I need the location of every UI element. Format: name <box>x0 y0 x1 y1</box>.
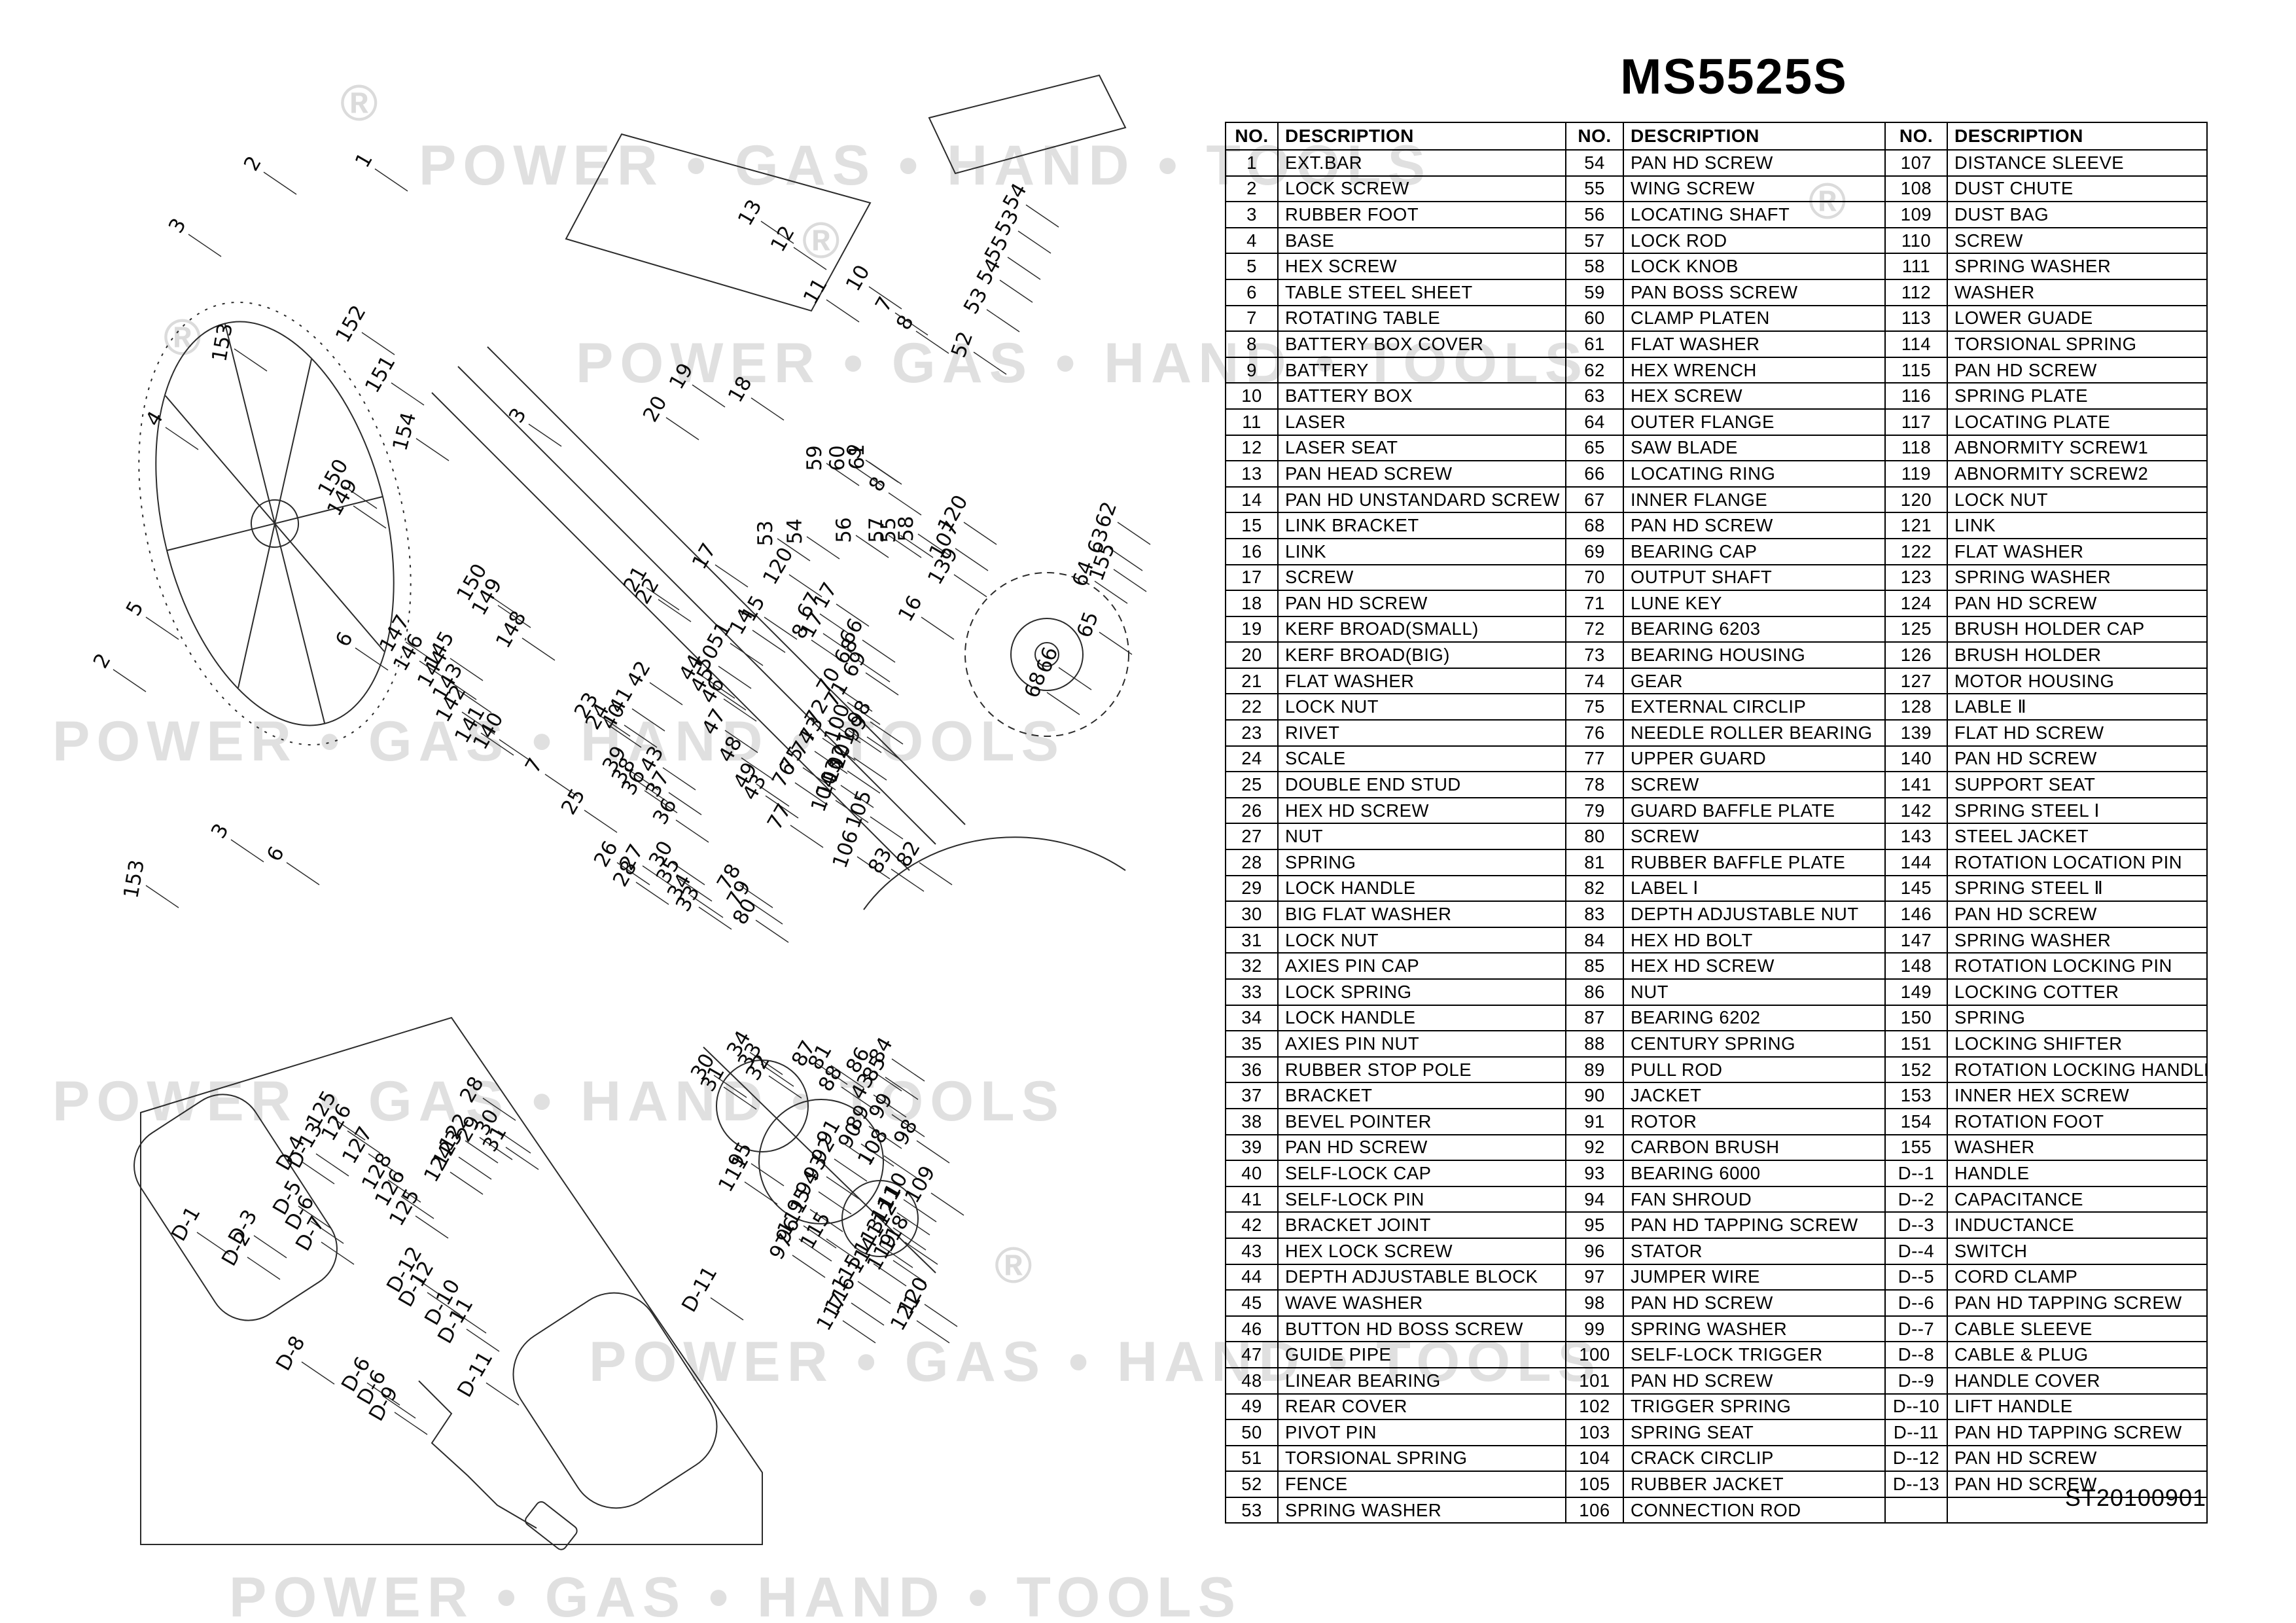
part-desc-cell: SCREW <box>1947 228 2207 254</box>
part-no-cell: 82 <box>1566 876 1623 902</box>
part-desc-cell: SELF-LOCK TRIGGER <box>1623 1342 1885 1368</box>
callout-leader-line <box>650 683 682 705</box>
part-desc-cell: LOCK HANDLE <box>1278 876 1566 902</box>
part-no-cell: 16 <box>1226 539 1278 565</box>
table-row: 14PAN HD UNSTANDARD SCREW67INNER FLANGE1… <box>1226 487 2207 513</box>
callout-label: 2 <box>239 152 266 175</box>
part-no-cell: 99 <box>1566 1316 1623 1342</box>
table-row: 16LINK69BEARING CAP122FLAT WASHER <box>1226 539 2207 565</box>
callout-label: D-8 <box>272 1332 310 1374</box>
part-desc-cell: SPRING WASHER <box>1278 1497 1566 1524</box>
callout-leader-line <box>1008 257 1040 279</box>
table-row: 5HEX SCREW58LOCK KNOB111SPRING WASHER <box>1226 253 2207 279</box>
part-no-cell: 11 <box>1226 409 1278 435</box>
callout-label: 54 <box>783 518 807 544</box>
part-desc-cell: INDUCTANCE <box>1947 1212 2207 1238</box>
callout-label: 120 <box>758 543 798 588</box>
part-no-cell: 50 <box>1226 1419 1278 1446</box>
part-no-cell: D--11 <box>1885 1419 1947 1446</box>
part-no-cell: 33 <box>1226 979 1278 1005</box>
callout-leader-line <box>964 522 997 544</box>
table-row: 18PAN HD SCREW71LUNE KEY124PAN HD SCREW <box>1226 590 2207 616</box>
part-desc-cell: LOCATING SHAFT <box>1623 202 1885 228</box>
table-row: 7ROTATING TABLE60CLAMP PLATEN113LOWER GU… <box>1226 306 2207 332</box>
callout-leader-line <box>790 825 823 847</box>
part-no-cell: 42 <box>1226 1212 1278 1238</box>
part-no-cell: 55 <box>1566 176 1623 202</box>
callout-leader-line <box>353 506 386 528</box>
part-desc-cell: LABEL Ⅰ <box>1623 876 1885 902</box>
callout-leader-line <box>919 863 952 885</box>
part-no-cell: 77 <box>1566 746 1623 772</box>
part-no-cell: 96 <box>1566 1238 1623 1264</box>
part-desc-cell: ROTOR <box>1623 1109 1885 1135</box>
callout-leader-line <box>847 771 880 793</box>
part-no-cell: 111 <box>1885 253 1947 279</box>
part-no-cell: 5 <box>1226 253 1278 279</box>
part-desc-cell: SELF-LOCK CAP <box>1278 1160 1566 1186</box>
table-row: 28SPRING81RUBBER BAFFLE PLATE144ROTATION… <box>1226 849 2207 876</box>
part-no-cell: 128 <box>1885 694 1947 720</box>
part-no-cell: 58 <box>1566 253 1623 279</box>
part-no-cell: 88 <box>1566 1031 1623 1057</box>
callout-leader-line <box>870 722 903 744</box>
part-no-cell: 85 <box>1566 953 1623 979</box>
part-desc-cell: LASER SEAT <box>1278 435 1566 461</box>
callout-label: 12 <box>766 222 800 256</box>
part-desc-cell: LOCK SCREW <box>1278 176 1566 202</box>
part-desc-cell: BUTTON HD BOSS SCREW <box>1278 1316 1566 1342</box>
part-no-cell: D--8 <box>1885 1342 1947 1368</box>
part-desc-cell: MOTOR HOUSING <box>1947 668 2207 694</box>
part-desc-cell: SPRING <box>1278 849 1566 876</box>
part-no-cell: 122 <box>1885 539 1947 565</box>
callout-leader-line <box>931 1193 964 1215</box>
part-no-cell: 97 <box>1566 1264 1623 1291</box>
callout-leader-line <box>917 1141 949 1163</box>
part-no-cell: 109 <box>1885 202 1947 228</box>
part-desc-cell: UPPER GUARD <box>1623 746 1885 772</box>
part-desc-cell: CLAMP PLATEN <box>1623 306 1885 332</box>
callout-leader-line <box>1047 692 1080 715</box>
callout-leader-line <box>264 172 296 194</box>
part-no-cell: 93 <box>1566 1160 1623 1186</box>
part-desc-cell: KERF BROAD(SMALL) <box>1278 616 1566 643</box>
part-no-cell: 20 <box>1226 642 1278 668</box>
callout-leader-line <box>302 1162 334 1184</box>
part-no-cell: 47 <box>1226 1342 1278 1368</box>
callout-leader-line <box>885 1077 918 1099</box>
part-no-cell: 120 <box>1885 487 1947 513</box>
part-desc-cell: FLAT HD SCREW <box>1947 720 2207 746</box>
part-no-cell: 153 <box>1885 1082 1947 1109</box>
part-no-cell: 155 <box>1885 1135 1947 1161</box>
part-desc-cell: HEX HD SCREW <box>1278 798 1566 824</box>
callout-leader-line <box>234 349 267 371</box>
callout-label: 59 <box>803 445 826 471</box>
part-desc-cell: LOCK NUT <box>1947 487 2207 513</box>
part-desc-cell: SPRING WASHER <box>1947 253 2207 279</box>
callout-leader-line <box>715 565 748 587</box>
callout-leader-line <box>362 332 395 355</box>
callout-leader-line <box>1118 522 1150 544</box>
part-desc-cell: HEX HD BOLT <box>1623 927 1885 954</box>
table-row: 37BRACKET90JACKET153INNER HEX SCREW <box>1226 1082 2207 1109</box>
part-no-cell: 94 <box>1566 1186 1623 1213</box>
callout-leader-line <box>1026 205 1059 227</box>
part-no-cell: 84 <box>1566 927 1623 954</box>
part-desc-cell: BIG FLAT WASHER <box>1278 901 1566 927</box>
part-no-cell: 48 <box>1226 1368 1278 1394</box>
callout-leader-line <box>522 638 555 660</box>
callout-leader-line <box>113 669 146 692</box>
part-desc-cell: GUIDE PIPE <box>1278 1342 1566 1368</box>
part-desc-cell: PAN HD SCREW <box>1278 590 1566 616</box>
part-desc-cell: DEPTH ADJUSTABLE NUT <box>1623 901 1885 927</box>
part-desc-cell: BEVEL POINTER <box>1278 1109 1566 1135</box>
callout-leader-line <box>851 1303 884 1325</box>
callout-leader-line <box>921 617 954 639</box>
callout-leader-line <box>188 234 221 257</box>
table-row: 26HEX HD SCREW79GUARD BAFFLE PLATE142SPR… <box>1226 798 2207 824</box>
callout-leader-line <box>1018 231 1051 253</box>
part-desc-cell: STATOR <box>1623 1238 1885 1264</box>
part-no-cell: 141 <box>1885 772 1947 798</box>
part-no-cell: 45 <box>1226 1290 1278 1316</box>
part-no-cell: 35 <box>1226 1031 1278 1057</box>
part-desc-cell: DUST CHUTE <box>1947 176 2207 202</box>
callout-label: 62 <box>1091 499 1122 531</box>
table-row: 41SELF-LOCK PIN94FAN SHROUDD--2CAPACITAN… <box>1226 1186 2207 1213</box>
part-desc-cell: FLAT WASHER <box>1623 331 1885 357</box>
part-desc-cell: TRIGGER SPRING <box>1623 1394 1885 1420</box>
callout-leader-line <box>416 438 449 461</box>
part-no-cell: 81 <box>1566 849 1623 876</box>
part-desc-cell: OUTPUT SHAFT <box>1623 565 1885 591</box>
footer-code: ST20100901 <box>1963 1484 2206 1512</box>
part-no-cell: 149 <box>1885 979 1947 1005</box>
part-desc-cell: EXT.BAR <box>1278 150 1566 176</box>
callout-leader-line <box>889 493 921 515</box>
part-no-cell: 54 <box>1566 150 1623 176</box>
part-desc-cell: NEEDLE ROLLER BEARING <box>1623 720 1885 746</box>
part-no-cell: 73 <box>1566 642 1623 668</box>
part-no-cell: 106 <box>1566 1497 1623 1524</box>
part-desc-cell: ABNORMITY SCREW1 <box>1947 435 2207 461</box>
part-desc-cell: SCREW <box>1623 772 1885 798</box>
part-desc-cell: PAN HD TAPPING SCREW <box>1947 1290 2207 1316</box>
part-no-cell: 145 <box>1885 876 1947 902</box>
part-desc-cell: CARBON BRUSH <box>1623 1135 1885 1161</box>
part-desc-cell: HANDLE COVER <box>1947 1368 2207 1394</box>
part-no-cell: 125 <box>1885 616 1947 643</box>
part-no-cell: 31 <box>1226 927 1278 954</box>
part-no-cell: 104 <box>1566 1446 1623 1472</box>
table-row: 42BRACKET JOINT95PAN HD TAPPING SCREWD--… <box>1226 1212 2207 1238</box>
part-no-cell: D--9 <box>1885 1368 1947 1394</box>
part-desc-cell: PAN HD UNSTANDARD SCREW <box>1278 487 1566 513</box>
part-desc-cell: AXIES PIN NUT <box>1278 1031 1566 1057</box>
part-no-cell: 105 <box>1566 1471 1623 1497</box>
part-desc-cell: PIVOT PIN <box>1278 1419 1566 1446</box>
part-desc-cell: LOWER GUADE <box>1947 306 2207 332</box>
part-desc-cell: PAN BOSS SCREW <box>1623 279 1885 306</box>
part-no-cell: 9 <box>1226 357 1278 383</box>
part-desc-cell: BEARING 6203 <box>1623 616 1885 643</box>
part-desc-cell: HEX HD SCREW <box>1623 953 1885 979</box>
part-no-cell: D--10 <box>1885 1394 1947 1420</box>
table-row: 9BATTERY62HEX WRENCH115PAN HD SCREW <box>1226 357 2207 383</box>
part-desc-cell: PAN HD SCREW <box>1947 746 2207 772</box>
part-no-cell: 143 <box>1885 823 1947 849</box>
part-no-cell: 26 <box>1226 798 1278 824</box>
callout-label: 7 <box>521 754 548 777</box>
part-desc-cell: RIVET <box>1278 720 1566 746</box>
header-description: DESCRIPTION <box>1947 122 2207 150</box>
callout-label: 17 <box>688 539 721 573</box>
part-desc-cell: SPRING WASHER <box>1947 927 2207 954</box>
part-desc-cell: LOCKING COTTER <box>1947 979 2207 1005</box>
callout-label: 53 <box>959 284 993 318</box>
part-desc-cell: SPRING PLATE <box>1947 383 2207 409</box>
callout-label: 105 <box>841 787 877 832</box>
part-no-cell: D--2 <box>1885 1186 1947 1213</box>
callout-leader-line <box>751 1164 784 1186</box>
part-no-cell: D--4 <box>1885 1238 1947 1264</box>
callout-leader-line <box>467 1329 499 1351</box>
part-desc-cell: RUBBER JACKET <box>1623 1471 1885 1497</box>
part-no-cell: 14 <box>1226 487 1278 513</box>
part-no-cell: 140 <box>1885 746 1947 772</box>
part-no-cell: 38 <box>1226 1109 1278 1135</box>
part-no-cell: 101 <box>1566 1368 1623 1394</box>
part-no-cell: 13 <box>1226 461 1278 487</box>
callout-label: 6 <box>331 628 358 651</box>
table-row: 19KERF BROAD(SMALL)72BEARING 6203125BRUS… <box>1226 616 2207 643</box>
part-no-cell: D--3 <box>1885 1212 1947 1238</box>
part-desc-cell: SPRING STEEL Ⅰ <box>1947 798 2207 824</box>
table-row: 32AXIES PIN CAP85HEX HD SCREW148ROTATION… <box>1226 953 2207 979</box>
part-no-cell: 100 <box>1566 1342 1623 1368</box>
callout-label: 153 <box>119 858 149 901</box>
part-desc-cell: CRACK CIRCLIP <box>1623 1446 1885 1472</box>
callout-label: 18 <box>724 372 757 406</box>
table-row: 39PAN HD SCREW92CARBON BRUSH155WASHER <box>1226 1135 2207 1161</box>
part-desc-cell: DOUBLE END STUD <box>1278 772 1566 798</box>
part-no-cell: D--1 <box>1885 1160 1947 1186</box>
part-desc-cell: LOCK KNOB <box>1623 253 1885 279</box>
table-row: 47GUIDE PIPE100SELF-LOCK TRIGGERD--8CABL… <box>1226 1342 2207 1368</box>
part-desc-cell: ROTATING TABLE <box>1278 306 1566 332</box>
page-title: MS5525S <box>1570 48 1898 105</box>
part-desc-cell: SELF-LOCK PIN <box>1278 1186 1566 1213</box>
callout-leader-line <box>146 885 179 908</box>
part-desc-cell: FAN SHROUD <box>1623 1186 1885 1213</box>
table-row: 43HEX LOCK SCREW96STATORD--4SWITCH <box>1226 1238 2207 1264</box>
part-no-cell: 24 <box>1226 746 1278 772</box>
callout-leader-line <box>752 630 785 652</box>
part-no-cell: 36 <box>1226 1057 1278 1083</box>
part-desc-cell: DEPTH ADJUSTABLE BLOCK <box>1278 1264 1566 1291</box>
table-row: 29LOCK HANDLE82LABEL Ⅰ145SPRING STEEL Ⅱ <box>1226 876 2207 902</box>
part-no-cell: 1 <box>1226 150 1278 176</box>
part-desc-cell: NUT <box>1278 823 1566 849</box>
part-desc-cell: PAN HD SCREW <box>1623 1290 1885 1316</box>
part-desc-cell: RUBBER BAFFLE PLATE <box>1623 849 1885 876</box>
parts-table: NO.DESCRIPTIONNO.DESCRIPTIONNO.DESCRIPTI… <box>1225 122 2208 1524</box>
callout-label: 56 <box>832 517 856 543</box>
part-no-cell: 30 <box>1226 901 1278 927</box>
part-no-cell: 32 <box>1226 953 1278 979</box>
part-no-cell: 150 <box>1885 1005 1947 1031</box>
part-desc-cell: LOCK ROD <box>1623 228 1885 254</box>
callout-leader-line <box>745 1182 777 1204</box>
callout-leader-line <box>632 709 665 731</box>
part-desc-cell: ABNORMITY SCREW2 <box>1947 461 2207 487</box>
callout-label: 7 <box>871 293 898 315</box>
part-no-cell: 69 <box>1566 539 1623 565</box>
table-row: 4BASE57LOCK ROD110 SCREW <box>1226 228 2207 254</box>
table-row: 11LASER64OUTER FLANGE117LOCATING PLATE <box>1226 409 2207 435</box>
callout-leader-line <box>751 398 784 420</box>
part-no-cell: 52 <box>1226 1471 1278 1497</box>
part-no-cell: 154 <box>1885 1109 1947 1135</box>
part-no-cell: 10 <box>1226 383 1278 409</box>
part-no-cell: 123 <box>1885 565 1947 591</box>
part-no-cell: 142 <box>1885 798 1947 824</box>
part-no-cell: 15 <box>1226 512 1278 539</box>
part-desc-cell: DUST BAG <box>1947 202 2207 228</box>
part-no-cell: 152 <box>1885 1057 1947 1083</box>
part-desc-cell: BEARING 6000 <box>1623 1160 1885 1186</box>
callout-leader-line <box>321 1242 354 1264</box>
callout-leader-line <box>794 247 826 270</box>
callout-label: 10 <box>841 261 875 295</box>
part-desc-cell: LOCK NUT <box>1278 927 1566 954</box>
part-no-cell: 65 <box>1566 435 1623 461</box>
part-desc-cell: PAN HD SCREW <box>1947 1446 2207 1472</box>
part-no-cell: 12 <box>1226 435 1278 461</box>
part-desc-cell: LOCKING SHIFTER <box>1947 1031 2207 1057</box>
part-no-cell: 25 <box>1226 772 1278 798</box>
table-row: 46BUTTON HD BOSS SCREW99SPRING WASHERD--… <box>1226 1316 2207 1342</box>
part-no-cell: 41 <box>1226 1186 1278 1213</box>
callout-leader-line <box>395 1412 427 1435</box>
part-no-cell: 95 <box>1566 1212 1623 1238</box>
part-no-cell: 124 <box>1885 590 1947 616</box>
part-no-cell: 74 <box>1566 668 1623 694</box>
table-row: 8BATTERY BOX COVER61FLAT WASHER114TORSIO… <box>1226 331 2207 357</box>
table-row: 44DEPTH ADJUSTABLE BLOCK97JUMPER WIRED--… <box>1226 1264 2207 1291</box>
part-desc-cell: WING SCREW <box>1623 176 1885 202</box>
part-desc-cell: BEARING 6202 <box>1623 1005 1885 1031</box>
part-desc-cell: LINK BRACKET <box>1278 512 1566 539</box>
part-no-cell: 29 <box>1226 876 1278 902</box>
table-row: 12LASER SEAT65SAW BLADE118ABNORMITY SCRE… <box>1226 435 2207 461</box>
callout-leader-line <box>287 863 319 885</box>
part-desc-cell: SUPPORT SEAT <box>1947 772 2207 798</box>
part-desc-cell: LIFT HANDLE <box>1947 1394 2207 1420</box>
part-desc-cell: FENCE <box>1278 1471 1566 1497</box>
part-desc-cell: ROTATION LOCKING HANDLE <box>1947 1057 2207 1083</box>
part-no-cell: D--12 <box>1885 1446 1947 1472</box>
part-no-cell: 46 <box>1226 1316 1278 1342</box>
table-row: 10BATTERY BOX63HEX SCREW116SPRING PLATE <box>1226 383 2207 409</box>
part-no-cell: 76 <box>1566 720 1623 746</box>
part-desc-cell: BRUSH HOLDER CAP <box>1947 616 2207 643</box>
part-desc-cell: SCALE <box>1278 746 1566 772</box>
callout-leader-line <box>792 1255 825 1277</box>
callout-label: 2 <box>89 649 116 672</box>
part-no-cell: 49 <box>1226 1394 1278 1420</box>
part-desc-cell: RUBBER STOP POLE <box>1278 1057 1566 1083</box>
table-row: 17SCREW70OUTPUT SHAFT123SPRING WASHER <box>1226 565 2207 591</box>
part-no-cell: 19 <box>1226 616 1278 643</box>
part-no-cell: 126 <box>1885 642 1947 668</box>
callout-label: 151 <box>361 351 400 397</box>
callout-leader-line <box>974 352 1006 374</box>
part-desc-cell: BATTERY <box>1278 357 1566 383</box>
part-no-cell: 86 <box>1566 979 1623 1005</box>
part-desc-cell: FLAT WASHER <box>1947 539 2207 565</box>
part-desc-cell: TABLE STEEL SHEET <box>1278 279 1566 306</box>
callout-leader-line <box>1114 569 1146 592</box>
part-desc-cell: HEX SCREW <box>1623 383 1885 409</box>
part-desc-cell: PAN HD SCREW <box>1278 1135 1566 1161</box>
callout-label: 82 <box>892 837 925 871</box>
part-no-cell: 3 <box>1226 202 1278 228</box>
part-desc-cell: RUBBER FOOT <box>1278 202 1566 228</box>
part-no-cell: 67 <box>1566 487 1623 513</box>
callout-label: 25 <box>557 785 590 819</box>
callout-label: 52 <box>947 329 978 361</box>
table-row: 25DOUBLE END STUD78 SCREW141SUPPORT SEAT <box>1226 772 2207 798</box>
part-no-cell <box>1885 1497 1947 1524</box>
table-row: 34LOCK HANDLE87BEARING 6202150SPRING <box>1226 1005 2207 1031</box>
callout-leader-line <box>867 737 900 759</box>
callout-label: 13 <box>733 196 767 230</box>
callout-label: 148 <box>491 607 531 652</box>
part-no-cell: 148 <box>1885 953 1947 979</box>
callout-label: 154 <box>388 410 421 453</box>
callout-leader-line <box>391 383 424 405</box>
part-desc-cell: LOCATING PLATE <box>1947 409 2207 435</box>
part-desc-cell: BEARING CAP <box>1623 539 1885 565</box>
callout-leader-line <box>450 1172 483 1194</box>
part-no-cell: 119 <box>1885 461 1947 487</box>
part-no-cell: 117 <box>1885 409 1947 435</box>
callout-label: 106 <box>828 827 864 872</box>
part-desc-cell: NUT <box>1623 979 1885 1005</box>
table-row: 23RIVET76NEEDLE ROLLER BEARING139FLAT HD… <box>1226 720 2207 746</box>
part-desc-cell: LOCK HANDLE <box>1278 1005 1566 1031</box>
callout-label: 19 <box>665 359 698 393</box>
part-no-cell: 18 <box>1226 590 1278 616</box>
callout-label: 65 <box>1072 609 1103 641</box>
table-row: 38BEVEL POINTER91ROTOR154ROTATION FOOT <box>1226 1109 2207 1135</box>
callout-label: 1 <box>351 149 378 171</box>
part-desc-cell: JACKET <box>1623 1082 1885 1109</box>
callout-leader-line <box>843 1321 875 1343</box>
table-row: 50PIVOT PIN103SPRING SEATD--11PAN HD TAP… <box>1226 1419 2207 1446</box>
part-no-cell: 70 <box>1566 565 1623 591</box>
table-row: 1EXT.BAR54PAN HD SCREW107DISTANCE SLEEVE <box>1226 150 2207 176</box>
callout-leader-line <box>486 1383 519 1405</box>
part-desc-cell: CENTURY SPRING <box>1623 1031 1885 1057</box>
part-desc-cell: CONNECTION ROD <box>1623 1497 1885 1524</box>
part-desc-cell: SPRING WASHER <box>1623 1316 1885 1342</box>
callout-label: 3 <box>504 404 531 427</box>
